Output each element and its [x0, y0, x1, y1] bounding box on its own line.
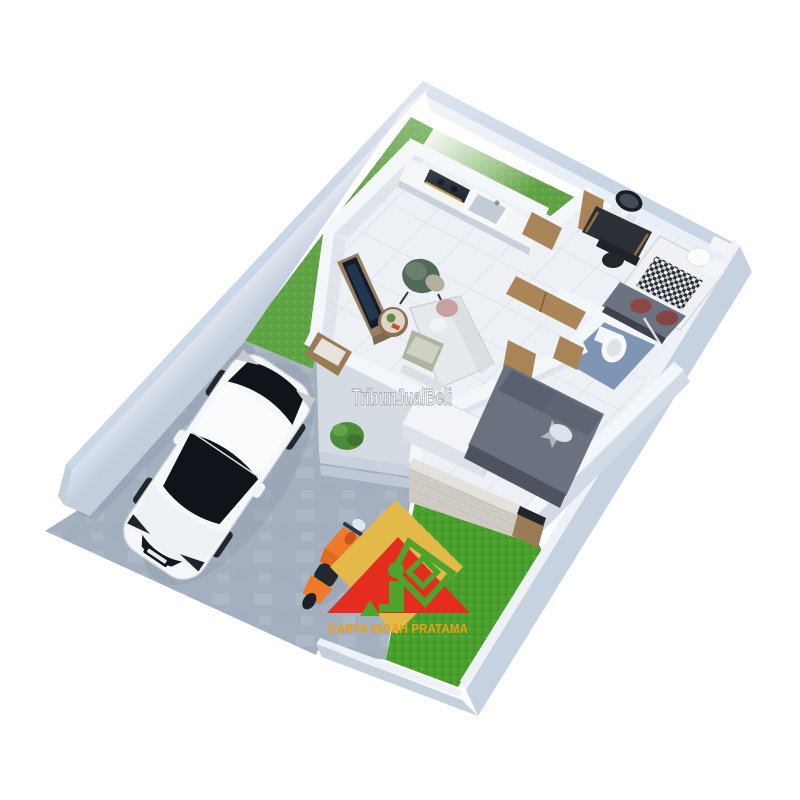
svg-text:KARYA INDAH PRATAMA: KARYA INDAH PRATAMA [328, 621, 469, 636]
svg-text:TribunJualBeli: TribunJualBeli [352, 384, 452, 410]
